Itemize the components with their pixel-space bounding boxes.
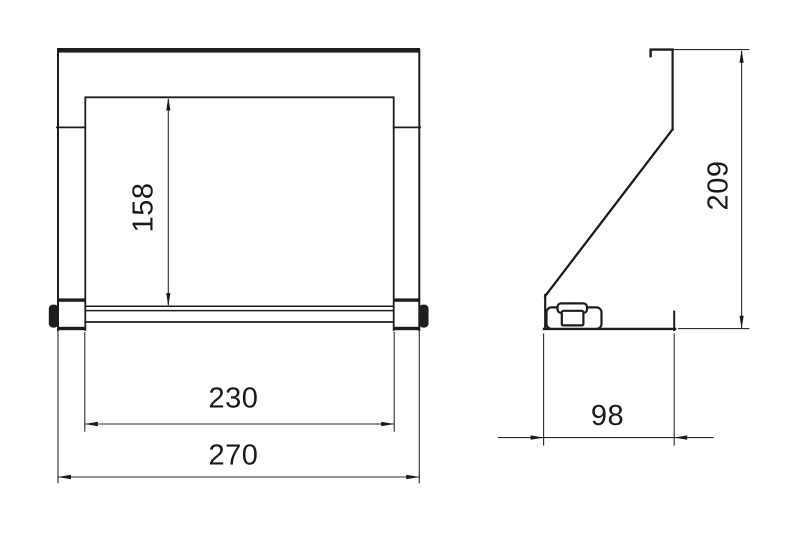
dim-98-arrow-right [674, 435, 687, 439]
front-right-end-cap [419, 305, 429, 328]
dimension-158: 158 [128, 97, 171, 306]
dimension-209: 209 [674, 50, 749, 329]
front-left-clamp-top [57, 298, 85, 301]
front-top-panel [57, 48, 420, 53]
dim-158-arrow-up [166, 97, 170, 110]
dim-209-arrow-up [740, 50, 744, 63]
front-left-clamp-bottom [57, 327, 85, 330]
dim-209-arrow-down [740, 316, 744, 329]
front-view [49, 48, 429, 330]
dim-270-arrow-left [58, 475, 71, 479]
dim-270-arrow-right [406, 475, 419, 479]
side-clip-inner-block [562, 311, 584, 326]
dim-270-label: 270 [209, 440, 259, 472]
side-view [544, 50, 675, 330]
dim-158-arrow-down [166, 293, 170, 306]
side-dimensions: 209 98 [498, 50, 749, 446]
dim-158-label: 158 [128, 183, 160, 233]
dim-230-arrow-right [381, 422, 394, 426]
dimension-230: 230 [85, 332, 394, 432]
dimension-98: 98 [498, 334, 714, 446]
dim-209-label: 209 [703, 161, 735, 211]
front-right-clamp-top [394, 298, 420, 301]
dim-98-arrow-left [531, 435, 544, 439]
dim-230-label: 230 [209, 383, 259, 415]
dim-230-arrow-left [85, 422, 98, 426]
front-dimensions: 158 230 270 [58, 97, 419, 483]
front-right-clamp-bottom [394, 327, 420, 330]
dim-98-label: 98 [591, 400, 624, 432]
side-top-hook [651, 50, 673, 57]
front-left-end-cap [49, 305, 59, 328]
side-sloped-face [545, 129, 672, 296]
technical-drawing-canvas: 158 230 270 [0, 0, 800, 545]
